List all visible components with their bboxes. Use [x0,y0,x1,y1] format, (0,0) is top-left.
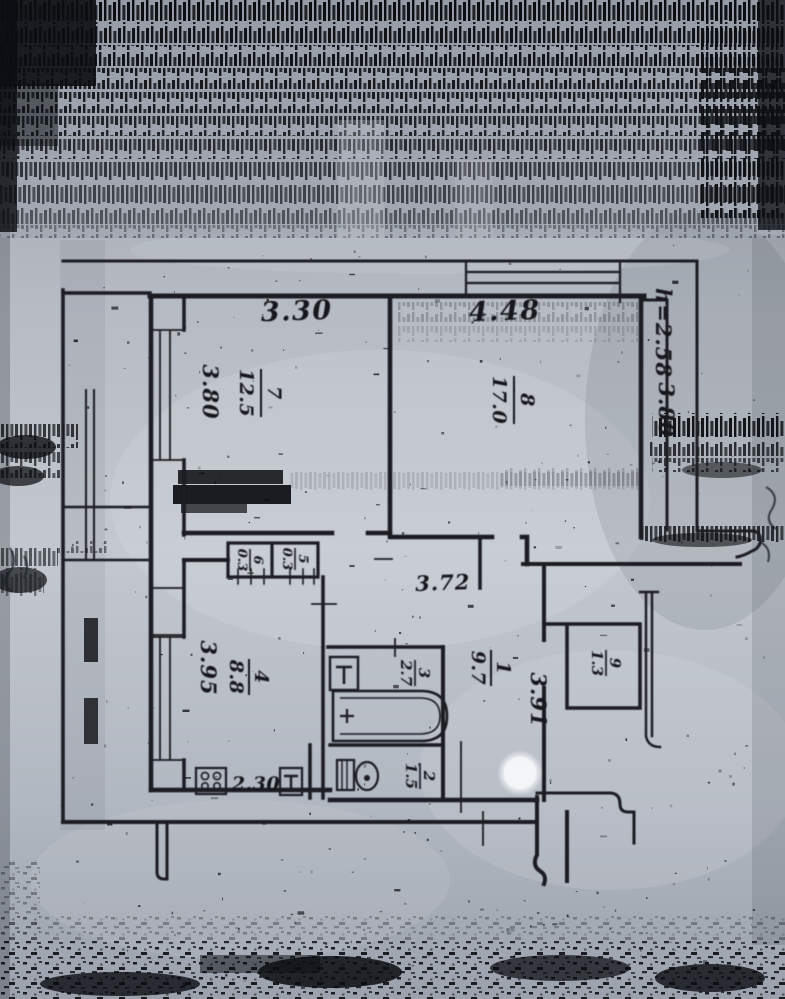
svg-text:3.80: 3.80 [198,364,223,419]
svg-text:7: 7 [263,386,285,400]
svg-text:17.0: 17.0 [488,376,510,424]
dim-room7-depth: 3.80 [198,364,223,419]
svg-text:2: 2 [420,770,438,781]
svg-text:3.80: 3.80 [654,382,679,437]
dim-room7-width: 3.30 [260,295,333,328]
dim-kitchen-width: 2.30 [231,773,280,795]
floor-plan-canvas: 3.30 4.48 3.80 7 12.5 8 17.0 h=2.58 3.80… [0,0,785,999]
svg-text:9.7: 9.7 [467,651,489,686]
svg-text:0.3: 0.3 [279,548,294,571]
svg-text:1.3: 1.3 [588,650,606,676]
svg-text:0.3: 0.3 [234,549,249,572]
scan-noise-top [0,0,785,238]
dim-corridor-width: 3.72 [415,569,471,596]
svg-text:2.7: 2.7 [397,659,415,687]
svg-text:4: 4 [250,670,272,684]
svg-text:1: 1 [492,661,514,675]
dim-room8-width: 4.48 [468,295,541,328]
svg-text:6: 6 [250,555,265,564]
svg-text:5: 5 [295,554,310,563]
hole-punch [497,750,543,796]
svg-text:3.95: 3.95 [196,640,221,695]
dim-room8-depth: 3.80 [654,382,679,437]
svg-text:3: 3 [415,668,433,678]
svg-text:12.5: 12.5 [235,369,257,417]
dim-kitchen-depth: 3.95 [196,640,221,695]
scanned-floor-plan-photo: 3.30 4.48 3.80 7 12.5 8 17.0 h=2.58 3.80… [0,0,785,999]
svg-text:9: 9 [606,658,624,669]
svg-text:3.91: 3.91 [526,672,551,727]
svg-text:8.8: 8.8 [225,659,247,695]
dim-ceiling-height: h=2.58 [651,288,676,378]
svg-text:h=2.58: h=2.58 [651,288,676,378]
svg-text:8: 8 [516,392,538,407]
dim-hall-depth: 3.91 [526,672,551,727]
svg-text:1.5: 1.5 [402,763,420,789]
